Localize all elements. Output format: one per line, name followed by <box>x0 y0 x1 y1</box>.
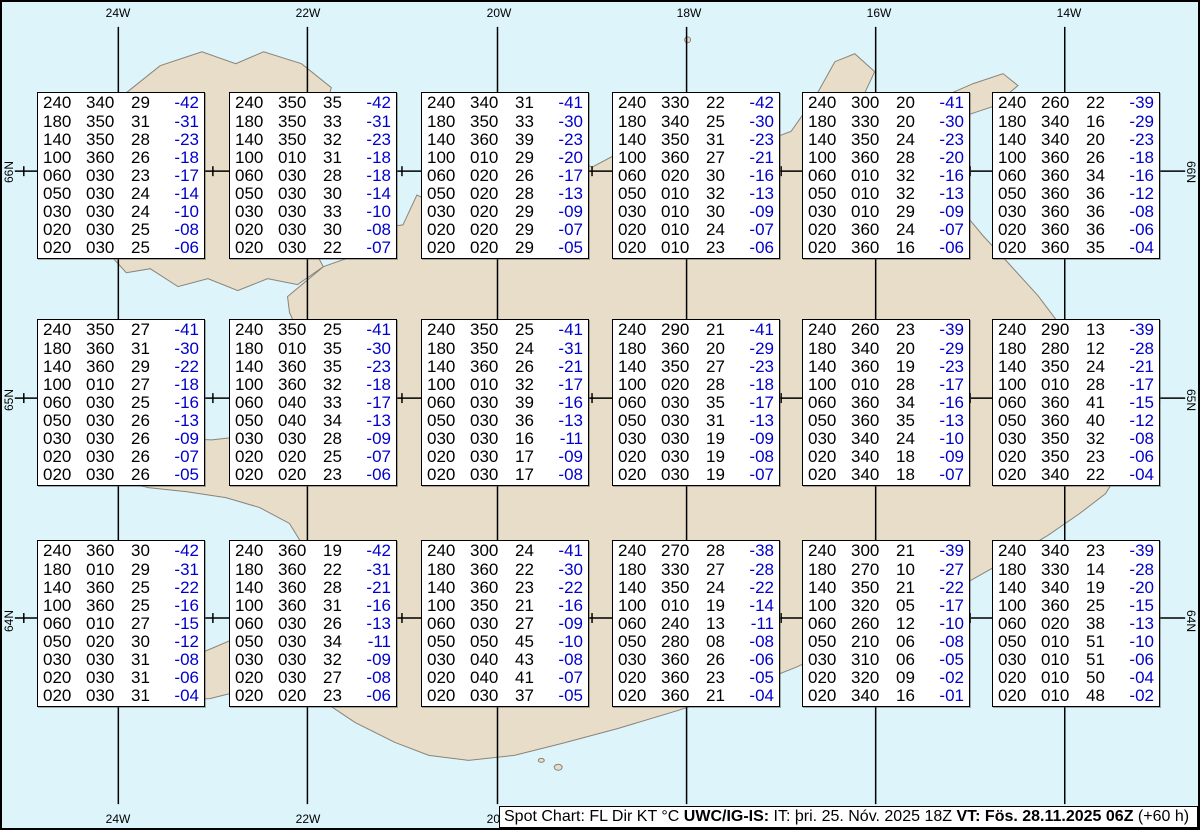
temp-value: -06 <box>1117 651 1154 669</box>
dir-value: 350 <box>470 113 515 131</box>
spot-row: 10036025-15 <box>998 597 1154 615</box>
fl-value: 060 <box>427 167 470 185</box>
fl-value: 060 <box>618 394 661 412</box>
fl-value: 020 <box>618 687 661 705</box>
fl-value: 100 <box>427 376 470 394</box>
dir-value: 360 <box>851 239 896 257</box>
dir-value: 360 <box>1041 239 1086 257</box>
spot-row: 06003035-17 <box>618 394 774 412</box>
kt-value: 24 <box>896 430 927 448</box>
temp-value: -28 <box>737 561 774 579</box>
kt-value: 34 <box>896 394 927 412</box>
temp-value: -41 <box>162 321 199 339</box>
temp-value: -23 <box>354 131 391 149</box>
kt-value: 31 <box>131 687 162 705</box>
dir-value: 350 <box>86 113 131 131</box>
spot-row: 02002023-06 <box>235 687 391 705</box>
fl-value: 050 <box>618 185 661 203</box>
fl-value: 180 <box>427 340 470 358</box>
spot-row: 05003034-11 <box>235 633 391 651</box>
dir-value: 030 <box>86 167 131 185</box>
fl-value: 240 <box>427 321 470 339</box>
dir-value: 020 <box>470 185 515 203</box>
dir-value: 290 <box>1041 321 1086 339</box>
fl-value: 180 <box>43 113 86 131</box>
spot-row: 10036027-21 <box>618 149 774 167</box>
spot-row: 10036026-18 <box>998 149 1154 167</box>
spot-row: 10001027-18 <box>43 376 199 394</box>
kt-value: 26 <box>131 430 162 448</box>
spot-box: 24030021-3918027010-2714035021-221003200… <box>802 540 970 707</box>
kt-value: 23 <box>706 669 737 687</box>
spot-row: 14034020-23 <box>998 131 1154 149</box>
dir-value: 360 <box>1041 394 1086 412</box>
kt-value: 37 <box>515 687 546 705</box>
spot-row: 24035025-41 <box>427 321 583 339</box>
spot-row: 10036031-16 <box>235 597 391 615</box>
dir-value: 270 <box>851 561 896 579</box>
spot-row: 18036022-30 <box>427 561 583 579</box>
lon-label-bottom: 22W <box>296 813 321 825</box>
temp-value: -20 <box>927 149 964 167</box>
fl-value: 020 <box>235 239 278 257</box>
spot-row: 02004041-07 <box>427 669 583 687</box>
dir-value: 010 <box>86 561 131 579</box>
dir-value: 340 <box>851 340 896 358</box>
fl-value: 100 <box>235 149 278 167</box>
dir-value: 030 <box>661 430 706 448</box>
temp-value: -04 <box>1117 466 1154 484</box>
spot-box: 24030024-4118036022-3014036023-221003502… <box>421 540 589 707</box>
temp-value: -13 <box>162 412 199 430</box>
spot-row: 14036029-22 <box>43 358 199 376</box>
lat-label-left: 66N <box>3 158 15 186</box>
fl-value: 100 <box>808 376 851 394</box>
dir-value: 010 <box>470 376 515 394</box>
fl-value: 060 <box>618 615 661 633</box>
spot-row: 06036034-16 <box>808 394 964 412</box>
kt-value: 23 <box>131 167 162 185</box>
fl-value: 240 <box>808 542 851 560</box>
temp-value: -16 <box>737 167 774 185</box>
dir-value: 030 <box>661 448 706 466</box>
dir-value: 350 <box>278 131 323 149</box>
spot-row: 03036026-06 <box>618 651 774 669</box>
fl-value: 050 <box>43 412 86 430</box>
dir-value: 340 <box>851 466 896 484</box>
fl-value: 180 <box>998 561 1041 579</box>
dir-value: 360 <box>1041 185 1086 203</box>
status-issue-time: IT: þri. 25. Nóv. 2025 18Z <box>769 808 956 826</box>
spot-row: 02001024-07 <box>618 221 774 239</box>
dir-value: 030 <box>86 203 131 221</box>
dir-value: 020 <box>1041 615 1086 633</box>
spot-row: 10001019-14 <box>618 597 774 615</box>
spot-row: 06001032-16 <box>808 167 964 185</box>
spot-row: 18035031-31 <box>43 113 199 131</box>
spot-row: 24034031-41 <box>427 94 583 112</box>
temp-value: -41 <box>354 321 391 339</box>
temp-value: -21 <box>354 579 391 597</box>
dir-value: 030 <box>86 394 131 412</box>
lon-label-top: 14W <box>1057 7 1082 19</box>
temp-value: -04 <box>1117 669 1154 687</box>
fl-value: 100 <box>618 376 661 394</box>
fl-value: 020 <box>618 221 661 239</box>
fl-value: 240 <box>427 94 470 112</box>
spot-row: 05005045-10 <box>427 633 583 651</box>
dir-value: 040 <box>278 412 323 430</box>
fl-value: 050 <box>998 185 1041 203</box>
kt-value: 24 <box>515 340 546 358</box>
temp-value: -18 <box>162 149 199 167</box>
spot-row: 03002029-09 <box>427 203 583 221</box>
temp-value: -11 <box>546 430 583 448</box>
fl-value: 030 <box>43 430 86 448</box>
fl-value: 020 <box>43 239 86 257</box>
spot-row: 18034025-30 <box>618 113 774 131</box>
kt-value: 16 <box>896 239 927 257</box>
kt-value: 41 <box>515 669 546 687</box>
temp-value: -28 <box>1117 561 1154 579</box>
kt-value: 24 <box>515 542 546 560</box>
fl-value: 030 <box>235 203 278 221</box>
spot-row: 10035021-16 <box>427 597 583 615</box>
dir-value: 340 <box>851 687 896 705</box>
kt-value: 24 <box>706 579 737 597</box>
temp-value: -11 <box>737 615 774 633</box>
lon-label-bottom: 24W <box>106 813 131 825</box>
temp-value: -13 <box>927 185 964 203</box>
temp-value: -16 <box>354 597 391 615</box>
temp-value: -23 <box>546 131 583 149</box>
spot-row: 02003031-04 <box>43 687 199 705</box>
fl-value: 140 <box>998 579 1041 597</box>
fl-value: 140 <box>618 579 661 597</box>
dir-value: 030 <box>278 633 323 651</box>
temp-value: -16 <box>927 167 964 185</box>
kt-value: 13 <box>1086 321 1117 339</box>
spot-row: 06002030-16 <box>618 167 774 185</box>
fl-value: 020 <box>43 448 86 466</box>
kt-value: 43 <box>515 651 546 669</box>
fl-value: 060 <box>998 394 1041 412</box>
kt-value: 29 <box>131 358 162 376</box>
spot-box: 24026022-3918034016-2914034020-231003602… <box>992 92 1160 259</box>
kt-value: 27 <box>515 615 546 633</box>
temp-value: -09 <box>927 448 964 466</box>
dir-value: 300 <box>470 542 515 560</box>
kt-value: 12 <box>896 615 927 633</box>
kt-value: 31 <box>323 149 354 167</box>
spot-row: 02032009-02 <box>808 669 964 687</box>
temp-value: -16 <box>927 394 964 412</box>
dir-value: 260 <box>851 615 896 633</box>
dir-value: 040 <box>278 394 323 412</box>
temp-value: -08 <box>546 651 583 669</box>
fl-value: 050 <box>43 633 86 651</box>
dir-value: 350 <box>661 358 706 376</box>
dir-value: 360 <box>470 131 515 149</box>
temp-value: -41 <box>737 321 774 339</box>
fl-value: 140 <box>808 579 851 597</box>
temp-value: -18 <box>1117 149 1154 167</box>
dir-value: 310 <box>851 651 896 669</box>
fl-value: 180 <box>998 113 1041 131</box>
fl-value: 020 <box>235 466 278 484</box>
spot-row: 14036023-22 <box>427 579 583 597</box>
spot-row: 18034016-29 <box>998 113 1154 131</box>
temp-value: -17 <box>927 597 964 615</box>
dir-value: 030 <box>278 615 323 633</box>
dir-value: 020 <box>86 633 131 651</box>
fl-value: 180 <box>43 340 86 358</box>
kt-value: 24 <box>131 203 162 221</box>
spot-row: 10001029-20 <box>427 149 583 167</box>
temp-value: -21 <box>546 358 583 376</box>
dir-value: 210 <box>851 633 896 651</box>
spot-row: 18033014-28 <box>998 561 1154 579</box>
spot-row: 02035023-06 <box>998 448 1154 466</box>
temp-value: -17 <box>737 394 774 412</box>
kt-value: 22 <box>706 94 737 112</box>
fl-value: 060 <box>43 615 86 633</box>
fl-value: 050 <box>235 412 278 430</box>
lat-label-left: 65N <box>3 386 15 414</box>
dir-value: 350 <box>851 579 896 597</box>
spot-row: 05001032-13 <box>618 185 774 203</box>
temp-value: -06 <box>927 239 964 257</box>
spot-row: 03036036-08 <box>998 203 1154 221</box>
spot-row: 03003033-10 <box>235 203 391 221</box>
spot-box: 24036019-4218036022-3114036028-211003603… <box>229 540 397 707</box>
fl-value: 020 <box>43 466 86 484</box>
kt-value: 22 <box>515 561 546 579</box>
dir-value: 360 <box>86 579 131 597</box>
temp-value: -29 <box>1117 113 1154 131</box>
spot-row: 02003025-08 <box>43 221 199 239</box>
temp-value: -15 <box>1117 597 1154 615</box>
fl-value: 020 <box>427 221 470 239</box>
spot-row: 10036025-16 <box>43 597 199 615</box>
spot-row: 24030021-39 <box>808 542 964 560</box>
kt-value: 26 <box>706 651 737 669</box>
kt-value: 32 <box>515 376 546 394</box>
temp-value: -08 <box>354 221 391 239</box>
temp-value: -18 <box>354 149 391 167</box>
spot-box: 24035027-4118036031-3014036029-221000102… <box>37 319 205 486</box>
kt-value: 29 <box>515 149 546 167</box>
dir-value: 360 <box>661 149 706 167</box>
dir-value: 350 <box>1041 448 1086 466</box>
kt-value: 23 <box>706 239 737 257</box>
spot-box: 24029013-3918028012-2814035024-211000102… <box>992 319 1160 486</box>
spot-row: 02034016-01 <box>808 687 964 705</box>
kt-value: 19 <box>323 542 354 560</box>
spot-row: 03001051-06 <box>998 651 1154 669</box>
fl-value: 020 <box>618 466 661 484</box>
temp-value: -31 <box>162 113 199 131</box>
spot-box: 24035025-4118035024-3114036026-211000103… <box>421 319 589 486</box>
lon-label-top: 18W <box>677 7 702 19</box>
dir-value: 300 <box>851 94 896 112</box>
spot-row: 03001030-09 <box>618 203 774 221</box>
kt-value: 24 <box>896 131 927 149</box>
fl-value: 140 <box>998 358 1041 376</box>
temp-value: -14 <box>737 597 774 615</box>
spot-box: 24034029-4218035031-3114035028-231003602… <box>37 92 205 259</box>
dir-value: 030 <box>470 412 515 430</box>
fl-value: 180 <box>235 113 278 131</box>
fl-value: 030 <box>998 430 1041 448</box>
fl-value: 030 <box>235 651 278 669</box>
kt-value: 08 <box>706 633 737 651</box>
temp-value: -42 <box>162 542 199 560</box>
dir-value: 360 <box>851 358 896 376</box>
spot-row: 06004033-17 <box>235 394 391 412</box>
spot-row: 02034022-04 <box>998 466 1154 484</box>
dir-value: 020 <box>278 448 323 466</box>
fl-value: 180 <box>618 113 661 131</box>
fl-value: 060 <box>43 167 86 185</box>
dir-value: 360 <box>278 376 323 394</box>
dir-value: 030 <box>86 448 131 466</box>
kt-value: 21 <box>706 687 737 705</box>
dir-value: 030 <box>86 466 131 484</box>
spot-row: 03001029-09 <box>808 203 964 221</box>
temp-value: -06 <box>737 651 774 669</box>
spot-row: 14035027-23 <box>618 358 774 376</box>
kt-value: 31 <box>131 340 162 358</box>
kt-value: 27 <box>131 376 162 394</box>
kt-value: 25 <box>131 394 162 412</box>
spot-row: 14036039-23 <box>427 131 583 149</box>
temp-value: -09 <box>546 615 583 633</box>
temp-value: -09 <box>546 203 583 221</box>
dir-value: 030 <box>278 221 323 239</box>
temp-value: -04 <box>162 687 199 705</box>
dir-value: 010 <box>86 376 131 394</box>
kt-value: 21 <box>896 579 927 597</box>
lat-label-right: 64N <box>1185 607 1197 635</box>
fl-value: 050 <box>427 633 470 651</box>
spot-box: 24030020-4118033020-3014035024-231003602… <box>802 92 970 259</box>
temp-value: -08 <box>162 221 199 239</box>
dir-value: 010 <box>661 203 706 221</box>
temp-value: -15 <box>1117 394 1154 412</box>
temp-value: -23 <box>354 358 391 376</box>
dir-value: 020 <box>278 687 323 705</box>
status-forecast-offset: (+60 h) <box>1133 808 1189 826</box>
spot-row: 03034024-10 <box>808 430 964 448</box>
fl-value: 100 <box>618 597 661 615</box>
dir-value: 360 <box>278 561 323 579</box>
temp-value: -31 <box>354 561 391 579</box>
spot-row: 03003028-09 <box>235 430 391 448</box>
fl-value: 030 <box>43 203 86 221</box>
spot-row: 24026023-39 <box>808 321 964 339</box>
spot-row: 18027010-27 <box>808 561 964 579</box>
kt-value: 29 <box>131 561 162 579</box>
dir-value: 340 <box>851 448 896 466</box>
dir-value: 030 <box>86 687 131 705</box>
dir-value: 030 <box>86 412 131 430</box>
dir-value: 010 <box>661 221 706 239</box>
fl-value: 140 <box>427 358 470 376</box>
dir-value: 040 <box>470 651 515 669</box>
kt-value: 27 <box>706 149 737 167</box>
spot-row: 18034020-29 <box>808 340 964 358</box>
kt-value: 34 <box>1086 167 1117 185</box>
kt-value: 18 <box>896 448 927 466</box>
spot-row: 18036031-30 <box>43 340 199 358</box>
kt-value: 25 <box>515 321 546 339</box>
dir-value: 010 <box>86 615 131 633</box>
temp-value: -10 <box>927 615 964 633</box>
fl-value: 020 <box>235 687 278 705</box>
spot-row: 10032005-17 <box>808 597 964 615</box>
temp-value: -17 <box>546 167 583 185</box>
kt-value: 28 <box>706 376 737 394</box>
spot-row: 18036020-29 <box>618 340 774 358</box>
temp-value: -16 <box>546 394 583 412</box>
kt-value: 36 <box>1086 221 1117 239</box>
fl-value: 020 <box>427 669 470 687</box>
fl-value: 030 <box>235 430 278 448</box>
spot-row: 10002028-18 <box>618 376 774 394</box>
dir-value: 030 <box>278 651 323 669</box>
fl-value: 060 <box>998 167 1041 185</box>
temp-value: -41 <box>546 542 583 560</box>
dir-value: 360 <box>1041 597 1086 615</box>
temp-value: -08 <box>162 651 199 669</box>
fl-value: 020 <box>808 221 851 239</box>
kt-value: 30 <box>706 167 737 185</box>
dir-value: 010 <box>851 376 896 394</box>
temp-value: -09 <box>546 448 583 466</box>
temp-value: -10 <box>354 203 391 221</box>
temp-value: -39 <box>1117 94 1154 112</box>
fl-value: 030 <box>808 203 851 221</box>
lon-label-top: 16W <box>867 7 892 19</box>
spot-row: 14035021-22 <box>808 579 964 597</box>
spot-box: 24027028-3818033027-2814035024-221000101… <box>612 540 780 707</box>
spot-row: 06003023-17 <box>43 167 199 185</box>
spot-row: 18028012-28 <box>998 340 1154 358</box>
fl-value: 050 <box>998 412 1041 430</box>
dir-value: 360 <box>851 221 896 239</box>
temp-value: -05 <box>927 651 964 669</box>
temp-value: -17 <box>354 394 391 412</box>
temp-value: -02 <box>1117 687 1154 705</box>
kt-value: 26 <box>515 358 546 376</box>
temp-value: -23 <box>927 358 964 376</box>
dir-value: 360 <box>1041 203 1086 221</box>
temp-value: -30 <box>354 340 391 358</box>
fl-value: 020 <box>235 448 278 466</box>
fl-value: 180 <box>427 113 470 131</box>
spot-row: 24035027-41 <box>43 321 199 339</box>
dir-value: 350 <box>86 321 131 339</box>
dir-value: 030 <box>86 185 131 203</box>
dir-value: 360 <box>851 149 896 167</box>
fl-value: 100 <box>808 149 851 167</box>
spot-row: 18033027-28 <box>618 561 774 579</box>
fl-value: 180 <box>998 340 1041 358</box>
dir-value: 340 <box>851 430 896 448</box>
kt-value: 30 <box>131 542 162 560</box>
fl-value: 140 <box>808 131 851 149</box>
